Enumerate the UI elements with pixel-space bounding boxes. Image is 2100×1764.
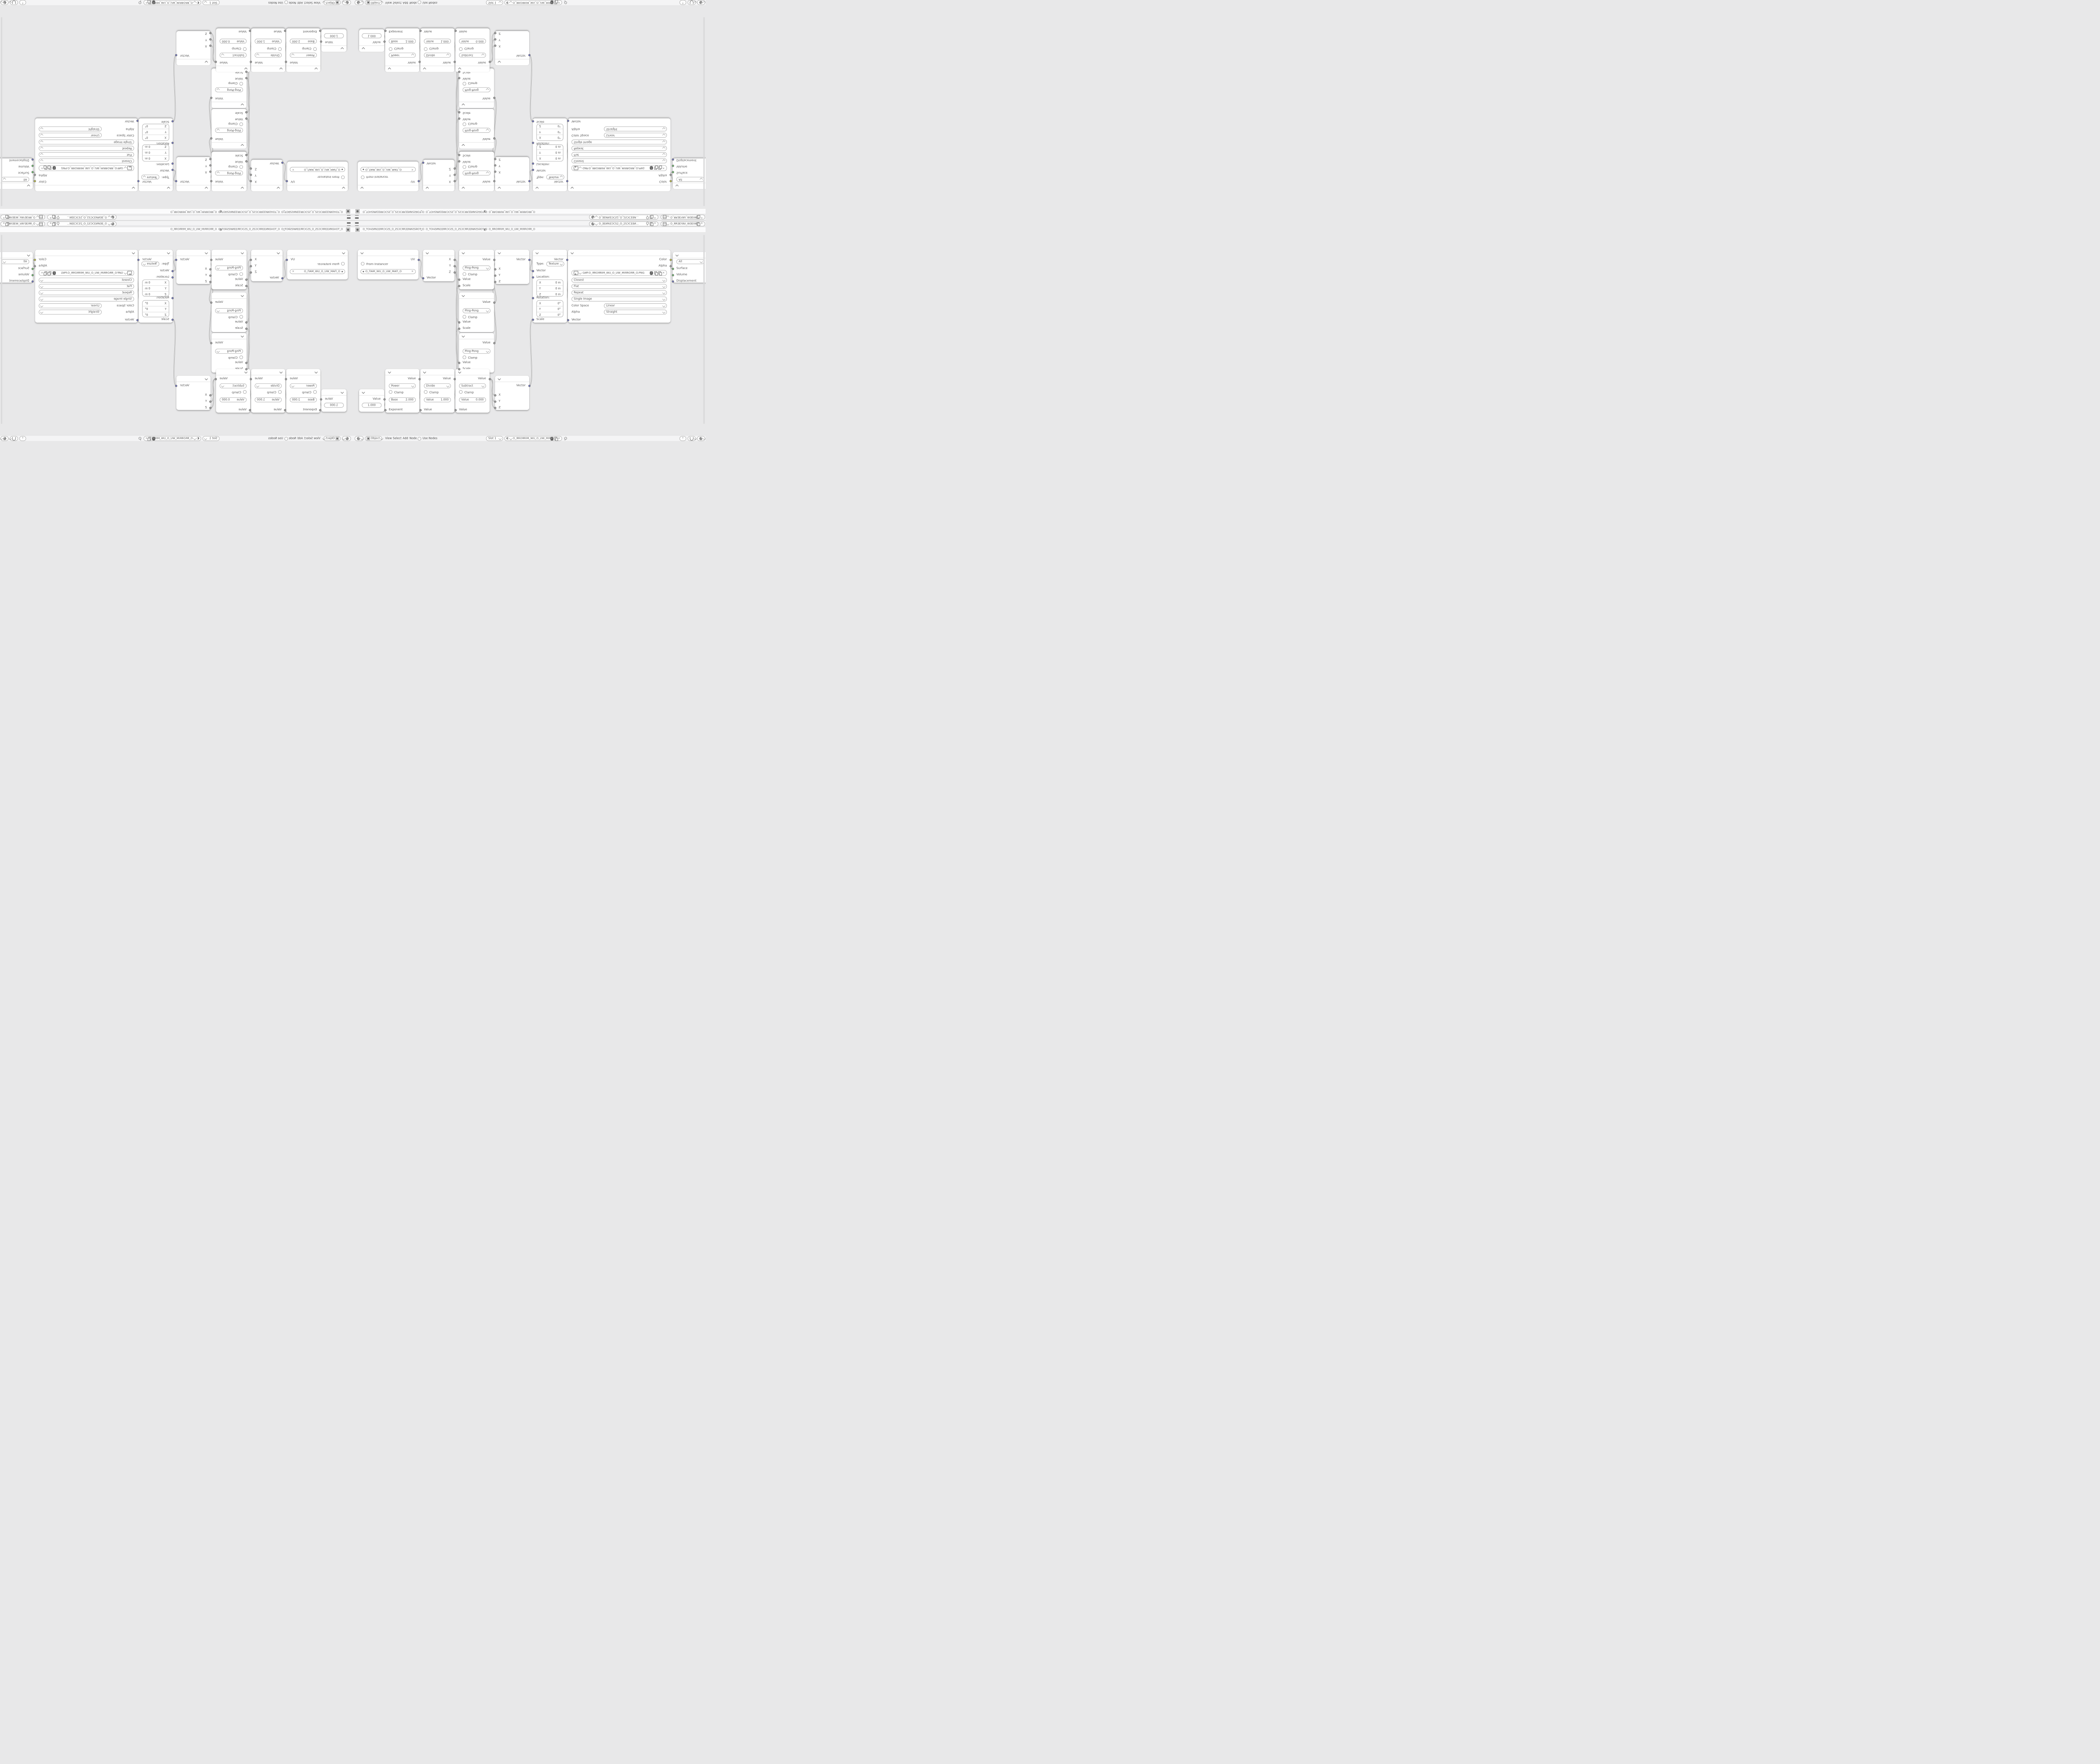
collapse-chevron-icon[interactable]	[241, 334, 244, 338]
socket-pp2-out[interactable]	[493, 301, 495, 303]
collapse-chevron-icon[interactable]	[498, 61, 501, 64]
node-uv-map[interactable]: UV From Instancer O_ПAM_WU_O_UW_MAП_O ✕	[358, 250, 419, 280]
interpolation-select[interactable]: Closest	[572, 158, 667, 163]
collapse-chevron-icon[interactable]	[498, 187, 501, 190]
view-layer-selector[interactable]: O_ЯRƎEYAV_WƎEIW_O_WIƎEW_VAYƎERЯ_O ✕	[0, 221, 45, 226]
socket-pw-in[interactable]	[384, 409, 386, 411]
collapse-chevron-icon[interactable]	[426, 187, 429, 190]
copy-icon[interactable]	[6, 216, 9, 219]
clamp-checkbox[interactable]	[459, 47, 463, 51]
duplicate-icon[interactable]	[658, 271, 661, 275]
value-field[interactable]: 1.000	[362, 403, 381, 408]
rotation-xyz-fields[interactable]: X0° Y0° Z0°	[536, 124, 563, 141]
menu-select[interactable]: Select	[393, 437, 401, 440]
unlink-icon[interactable]: ✕	[662, 272, 664, 274]
math-operation-select[interactable]: Ping-Pong	[215, 349, 243, 354]
breadcrumb-mesh[interactable]: O_TOHƧИNƎƎЯRƆCƧS_O_ƧSƆCЯRƎƎNИƧSHOT_O	[426, 228, 488, 231]
breadcrumb-material[interactable]: O_ЯROЯRIM_WU_O_UW_MIЯROЯR_O	[171, 228, 217, 231]
socket-sep-x[interactable]	[453, 259, 455, 261]
clamp-checkbox[interactable]	[239, 82, 243, 86]
collapse-chevron-icon[interactable]	[362, 391, 365, 394]
snapping-button[interactable]	[10, 436, 18, 441]
node-math-subtract[interactable]: Value Subtract Clamp Value 0.000 Value	[455, 369, 489, 413]
math-operation-select[interactable]: Power	[290, 52, 317, 58]
vertical-scrollbar[interactable]	[1, 235, 2, 424]
breadcrumb-material[interactable]: O_ЯROЯRIM_WU_O_UW_MIЯROЯR_O	[171, 210, 217, 213]
node-separate-xyz[interactable]: X Y Z Vector	[251, 160, 283, 191]
copy-icon[interactable]	[554, 1, 557, 4]
math-operation-select[interactable]: Power	[290, 383, 317, 388]
overlay-button[interactable]: ↑	[680, 0, 686, 5]
copy-icon[interactable]	[697, 222, 699, 226]
node-image-texture[interactable]: Color Alpha GИP.O_ЯROЯRIM_WU_O_UW_MIЯROЯ…	[35, 118, 138, 192]
preview-shading-button[interactable]	[0, 0, 8, 5]
node-math-ping-pong[interactable]: Value Ping-Pong Clamp Value Scale	[459, 250, 494, 289]
clear-icon[interactable]: ✕	[411, 168, 413, 171]
collapse-chevron-icon[interactable]	[571, 187, 574, 190]
menu-select[interactable]: Select	[304, 1, 312, 4]
socket-c1-out[interactable]	[528, 259, 530, 261]
color-space-select[interactable]: Linear	[604, 133, 667, 138]
menu-node[interactable]: Node	[409, 1, 417, 4]
use-nodes-checkbox[interactable]: ✓	[284, 1, 288, 5]
clamp-checkbox[interactable]	[389, 390, 393, 394]
node-uv-map[interactable]: UV From Instancer O_ПAM_WU_O_UW_MAП_O ✕	[358, 162, 419, 192]
location-xyz-fields[interactable]: X0 m Y0 m Z0 m	[536, 144, 563, 162]
scene-selector[interactable]: O_ƎEИNƎƆCS2_O_2SƆCƎƎИ… ✕	[47, 221, 117, 226]
use-nodes-checkbox[interactable]: ✓	[417, 437, 421, 441]
output-target-select[interactable]: All	[1, 177, 29, 182]
use-nodes-checkbox[interactable]: ✓	[284, 437, 288, 441]
editor-type-button[interactable]	[354, 436, 363, 441]
material-selector[interactable]: ◐ O_ЯROЯRIM_WU_O_UW_MIЯROЯR_O ✓ ✕	[504, 436, 562, 441]
base-value-field[interactable]: Base 2.000	[389, 39, 416, 44]
vertical-scrollbar[interactable]	[703, 17, 705, 206]
socket-img-vec[interactable]	[567, 319, 569, 321]
extension-select[interactable]: Repeat	[39, 290, 134, 295]
clear-icon[interactable]: ✕	[292, 168, 294, 171]
socket-map-rot[interactable]	[532, 297, 534, 299]
math-operation-select[interactable]: Ping-Pong	[215, 128, 243, 133]
pin-icon[interactable]	[57, 215, 59, 219]
menu-add[interactable]: Add	[403, 1, 408, 4]
topbar-menu-icon[interactable]	[347, 222, 351, 226]
preview-shading-button[interactable]	[697, 0, 705, 5]
collapse-chevron-icon[interactable]	[167, 251, 170, 255]
node-math-subtract[interactable]: Value Subtract Clamp Value 0.000 Value	[216, 369, 250, 413]
math-operation-select[interactable]: Ping-Pong	[462, 171, 490, 176]
vertical-scrollbar[interactable]	[1, 17, 2, 206]
breadcrumb-object[interactable]: O_TOHƧИNƎƎЯRƆCƧS_O_ƧSƆCЯRƎƎNИƧSHOT_O	[363, 210, 425, 213]
projection-select[interactable]: Flat	[572, 284, 667, 289]
socket-sb-in[interactable]	[454, 409, 457, 411]
collapse-chevron-icon[interactable]	[341, 47, 344, 50]
unlink-icon[interactable]: ✕	[145, 1, 147, 4]
socket-mo-surface[interactable]	[672, 268, 674, 270]
menu-node[interactable]: Node	[289, 437, 296, 440]
socket-mo-disp[interactable]	[672, 280, 674, 282]
clamp-checkbox[interactable]	[424, 390, 428, 394]
unlink-icon[interactable]: ✕	[558, 437, 560, 440]
breadcrumb-object[interactable]: O_TOHƧИNƎƎЯRƆCƧS_O_ƧSƆCЯRƎƎNИƧSHOT_O	[363, 228, 425, 231]
collapse-chevron-icon[interactable]	[462, 187, 465, 190]
math-operation-select[interactable]: Ping-Pong	[462, 349, 490, 354]
node-combine-xyz[interactable]: Vector X Y Z	[176, 157, 210, 191]
interpolation-select[interactable]: Closest	[572, 278, 667, 283]
pin-icon[interactable]	[57, 222, 59, 226]
node-combine-xyz[interactable]: Vector X Y Z	[495, 376, 529, 410]
collapse-chevron-icon[interactable]	[462, 294, 465, 297]
copy-icon[interactable]	[650, 222, 652, 226]
copy-icon[interactable]	[697, 216, 699, 219]
shader-type-select[interactable]: Object	[323, 0, 341, 5]
unlink-icon[interactable]: ✕	[654, 216, 656, 218]
socket-sb-out[interactable]	[488, 378, 491, 380]
value-field[interactable]: Value 1.000	[424, 39, 451, 44]
node-combine-xyz[interactable]: Vector X Y Z	[176, 376, 210, 410]
scene-selector[interactable]: O_ƎEИNƎƆCS2_O_2SƆCƎƎИ… ✕	[589, 221, 658, 226]
overlay-button[interactable]: ↑	[680, 436, 686, 441]
socket-sep-in[interactable]	[422, 277, 424, 279]
node-math-power[interactable]: Value Power Clamp Base 2.000 Exponent	[286, 29, 320, 72]
pin-icon[interactable]	[646, 215, 648, 219]
collapse-chevron-icon[interactable]	[241, 251, 244, 255]
math-operation-select[interactable]: Ping-Pong	[462, 265, 490, 270]
snapping-button[interactable]	[10, 0, 18, 5]
collapse-chevron-icon[interactable]	[205, 377, 208, 381]
value-field[interactable]: Value 1.000	[255, 39, 281, 44]
socket-img-color[interactable]	[669, 259, 672, 261]
value-field[interactable]: 1.000	[362, 33, 381, 38]
node-mapping[interactable]: Vector Type: Texture Vector Location: X0…	[139, 250, 173, 323]
value-field[interactable]: Value 1.000	[255, 397, 281, 402]
uv-map-select[interactable]: O_ПAM_WU_O_UW_MAП_O ✕	[360, 269, 416, 274]
copy-icon[interactable]	[6, 222, 9, 226]
overlay-button[interactable]: ↑	[19, 0, 26, 5]
breadcrumb-mesh[interactable]: O_TOHƧИNƎƎЯRƆCƧS_O_ƧSƆCЯRƎƎNИƧSHOT_O	[218, 228, 280, 231]
node-math-ping-pong[interactable]: Value Ping-Pong Clamp Value Scale	[212, 152, 247, 191]
clamp-checkbox[interactable]	[462, 122, 466, 126]
clamp-checkbox[interactable]	[239, 122, 243, 126]
collapse-chevron-icon[interactable]	[423, 68, 426, 71]
snapping-button[interactable]	[688, 0, 696, 5]
projection-select[interactable]: Flat	[39, 284, 134, 289]
socket-pp1-out[interactable]	[493, 259, 495, 261]
source-select[interactable]: Single Image	[39, 297, 134, 302]
collapse-chevron-icon[interactable]	[132, 251, 135, 255]
collapse-chevron-icon[interactable]	[362, 47, 365, 50]
collapse-chevron-icon[interactable]	[27, 253, 30, 257]
value-field[interactable]: Value 0.000	[220, 39, 247, 44]
socket-c2-y[interactable]	[494, 400, 496, 402]
menu-view[interactable]: View	[385, 437, 392, 440]
rotation-xyz-fields[interactable]: X0° Y0° Z0°	[142, 300, 169, 318]
fake-user-shield-icon[interactable]: ✓	[650, 271, 653, 275]
pin-icon[interactable]	[564, 437, 566, 441]
vertical-scrollbar[interactable]	[703, 235, 705, 424]
shader-type-select[interactable]: Object	[323, 436, 341, 441]
socket-pp1-scale[interactable]	[458, 285, 460, 287]
location-xyz-fields[interactable]: X0 m Y0 m Z0 m	[536, 279, 563, 297]
socket-c2-x[interactable]	[494, 394, 496, 396]
math-operation-select[interactable]: Divide	[424, 383, 451, 388]
socket-dv-in[interactable]	[419, 409, 421, 411]
math-operation-select[interactable]: Ping-Pong	[215, 171, 243, 176]
image-datablock-selector[interactable]: GИP.O_ЯROЯRIM_WU_O_UW_MIЯROЯR_O.PNG ✓ ✕	[39, 270, 134, 276]
clamp-checkbox[interactable]	[278, 390, 282, 394]
clamp-checkbox[interactable]	[239, 165, 243, 169]
node-math-subtract[interactable]: Value Subtract Clamp Value 0.000 Value	[455, 29, 489, 72]
collapse-chevron-icon[interactable]	[132, 187, 135, 190]
node-math-ping-pong[interactable]: Value Ping-Pong Clamp Value Scale	[212, 333, 247, 373]
collapse-chevron-icon[interactable]	[244, 68, 248, 71]
collapse-chevron-icon[interactable]	[535, 187, 539, 190]
clamp-checkbox[interactable]	[424, 47, 428, 51]
node-image-texture[interactable]: Color Alpha GИP.O_ЯROЯRIM_WU_O_UW_MIЯROЯ…	[568, 250, 670, 323]
pin-icon[interactable]	[646, 222, 648, 226]
node-math-divide[interactable]: Value Divide Clamp Value 1.000 Value	[420, 369, 454, 413]
remove-icon[interactable]: ✕	[701, 216, 703, 218]
extension-select[interactable]: Repeat	[39, 146, 134, 151]
slot-select[interactable]: Slot 1	[486, 436, 503, 441]
node-uv-map[interactable]: UV From Instancer O_ПAM_WU_O_UW_MAП_O ✕	[287, 250, 348, 280]
material-selector[interactable]: ◐ O_ЯROЯRIM_WU_O_UW_MIЯROЯR_O ✓ ✕	[144, 436, 201, 441]
node-combine-xyz[interactable]: Vector X Y Z	[495, 250, 529, 284]
unlink-icon[interactable]: ✕	[41, 272, 43, 274]
node-mapping[interactable]: Vector Type: Texture Vector Location: X0…	[533, 250, 567, 323]
socket-mo-volume[interactable]	[672, 274, 674, 276]
node-math-power[interactable]: Value Power Clamp Base 2.000 Exponent	[385, 369, 419, 413]
node-math-divide[interactable]: Value Divide Clamp Value 1.000 Value	[420, 29, 454, 72]
output-target-select[interactable]: All	[676, 177, 704, 182]
source-select[interactable]: Single Image	[572, 297, 667, 302]
collapse-chevron-icon[interactable]	[360, 251, 364, 255]
snapping-button[interactable]	[688, 436, 696, 441]
menu-view[interactable]: View	[385, 1, 392, 4]
clamp-checkbox[interactable]	[243, 47, 247, 51]
unlink-icon[interactable]: ✕	[50, 222, 52, 225]
remove-icon[interactable]: ✕	[701, 222, 703, 225]
copy-icon[interactable]	[49, 271, 51, 275]
clamp-checkbox[interactable]	[462, 82, 466, 86]
collapse-chevron-icon[interactable]	[458, 370, 462, 374]
collapse-chevron-icon[interactable]	[462, 251, 465, 255]
shader-type-select[interactable]: Object	[365, 436, 382, 441]
uv-map-select[interactable]: O_ПAM_WU_O_UW_MAП_O ✕	[290, 167, 345, 172]
math-operation-select[interactable]: Subtract	[220, 383, 247, 388]
clamp-checkbox[interactable]	[389, 47, 393, 51]
breadcrumb-mesh[interactable]: O_TOHƧИNƎƎЯRƆCƧS_O_ƧSƆCЯRƎƎNИƧSHOT_O	[218, 210, 280, 213]
socket-c2-out[interactable]	[528, 385, 530, 387]
clamp-checkbox[interactable]	[459, 390, 463, 394]
node-math-ping-pong[interactable]: Value Ping-Pong Clamp Value Scale	[212, 292, 247, 332]
extension-select[interactable]: Repeat	[572, 290, 667, 295]
slot-select[interactable]: Slot 1	[202, 0, 220, 5]
output-target-select[interactable]: All	[1, 259, 29, 264]
collapse-chevron-icon[interactable]	[167, 187, 170, 190]
uv-map-select[interactable]: O_ПAM_WU_O_UW_MAП_O ✕	[290, 269, 345, 274]
pin-icon[interactable]	[564, 1, 566, 5]
socket-dv-out[interactable]	[453, 378, 455, 380]
node-value[interactable]: Value 1.000	[321, 29, 346, 52]
collapse-chevron-icon[interactable]	[315, 68, 318, 71]
menu-view[interactable]: View	[314, 437, 320, 440]
collapse-chevron-icon[interactable]	[27, 184, 30, 188]
clamp-checkbox[interactable]	[278, 47, 282, 51]
node-material-output[interactable]: All Surface Volume Displacement	[0, 158, 33, 189]
collapse-chevron-icon[interactable]	[462, 144, 465, 147]
collapse-chevron-icon[interactable]	[205, 61, 208, 64]
projection-select[interactable]: Flat	[572, 152, 667, 157]
menu-node[interactable]: Node	[409, 437, 417, 440]
unlink-icon[interactable]: ✕	[654, 222, 656, 225]
collapse-chevron-icon[interactable]	[315, 370, 318, 374]
collapse-chevron-icon[interactable]	[241, 144, 244, 147]
mapping-type-select[interactable]: Texture	[546, 261, 564, 266]
math-operation-select[interactable]: Ping-Pong	[462, 308, 490, 313]
socket-c1-z[interactable]	[494, 281, 496, 283]
node-math-power[interactable]: Value Power Clamp Base 2.000 Exponent	[286, 369, 320, 413]
math-operation-select[interactable]: Ping-Pong	[462, 87, 490, 92]
view-layer-selector[interactable]: O_ЯRƎEYAV_WƎEIW_O_WIƎEW_VAYƎERЯ_O ✕	[0, 215, 45, 220]
fake-user-shield-icon[interactable]: ✓	[650, 166, 653, 170]
clamp-checkbox[interactable]	[239, 315, 243, 319]
node-separate-xyz[interactable]: X Y Z Vector	[423, 250, 454, 281]
projection-select[interactable]: Flat	[39, 152, 134, 157]
clamp-checkbox[interactable]	[462, 272, 466, 276]
breadcrumb-mesh[interactable]: O_TOHƧИNƎƎЯRƆCƧS_O_ƧSƆCЯRƎƎNИƧSHOT_O	[426, 210, 488, 213]
collapse-chevron-icon[interactable]	[277, 187, 280, 190]
base-value-field[interactable]: Base 2.000	[290, 397, 317, 402]
socket-pp3-out[interactable]	[493, 342, 495, 344]
base-value-field[interactable]: Base 2.000	[389, 397, 416, 402]
socket-map-out[interactable]	[566, 259, 568, 261]
node-math-divide[interactable]: Value Divide Clamp Value 1.000 Value	[251, 29, 285, 72]
extension-select[interactable]: Repeat	[572, 146, 667, 151]
unlink-icon[interactable]: ✕	[558, 1, 560, 4]
copy-icon[interactable]	[49, 166, 51, 170]
node-separate-xyz[interactable]: X Y Z Vector	[423, 160, 454, 191]
alpha-select[interactable]: Straight	[39, 310, 102, 315]
collapse-chevron-icon[interactable]	[498, 377, 501, 381]
collapse-chevron-icon[interactable]	[279, 68, 283, 71]
editor-type-button[interactable]	[342, 436, 351, 441]
breadcrumb-material[interactable]: O_ЯROЯRIM_WU_O_UW_MIЯROЯR_O	[489, 210, 535, 213]
socket-pw-out[interactable]	[418, 378, 420, 380]
collapse-chevron-icon[interactable]	[277, 251, 280, 255]
fake-user-shield-icon[interactable]: ✓	[52, 271, 56, 275]
node-math-ping-pong[interactable]: Value Ping-Pong Clamp Value Scale	[459, 333, 494, 373]
collapse-chevron-icon[interactable]	[498, 251, 501, 255]
math-operation-select[interactable]: Subtract	[459, 383, 486, 388]
collapse-chevron-icon[interactable]	[458, 68, 462, 71]
socket-pp2-val[interactable]	[458, 321, 460, 323]
from-instancer-checkbox[interactable]	[341, 262, 345, 266]
menu-add[interactable]: Add	[297, 1, 303, 4]
clamp-checkbox[interactable]	[239, 355, 243, 359]
clamp-checkbox[interactable]	[313, 390, 317, 394]
pin-icon[interactable]	[139, 437, 142, 441]
node-mapping[interactable]: Vector Type: Texture Vector Location: X0…	[533, 118, 567, 192]
mapping-type-select[interactable]: Texture	[141, 261, 159, 266]
rotation-xyz-fields[interactable]: X0° Y0° Z0°	[536, 300, 563, 318]
collapse-chevron-icon[interactable]	[675, 184, 679, 188]
node-math-ping-pong[interactable]: Value Ping-Pong Clamp Value Scale	[459, 68, 494, 108]
math-operation-select[interactable]: Power	[389, 52, 416, 58]
clear-icon[interactable]: ✕	[411, 270, 413, 273]
breadcrumb-material[interactable]: O_ЯROЯRIM_WU_O_UW_MIЯROЯR_O	[489, 228, 535, 231]
collapse-chevron-icon[interactable]	[342, 251, 345, 255]
socket-map-scale[interactable]	[532, 318, 534, 320]
node-combine-xyz[interactable]: Vector X Y Z	[176, 250, 210, 284]
math-operation-select[interactable]: Ping-Pong	[215, 87, 243, 92]
math-operation-select[interactable]: Subtract	[220, 52, 247, 58]
image-datablock-selector[interactable]: GИP.O_ЯROЯRIM_WU_O_UW_MIЯROЯR_O.PNG ✓ ✕	[572, 165, 667, 171]
copy-icon[interactable]	[654, 271, 657, 275]
duplicate-icon[interactable]	[45, 166, 47, 170]
node-value[interactable]: Value 1.000	[321, 389, 346, 412]
socket-sep-z[interactable]	[453, 271, 455, 273]
copy-icon[interactable]	[149, 437, 151, 440]
math-operation-select[interactable]: Subtract	[459, 52, 486, 58]
math-operation-select[interactable]: Ping-Pong	[215, 265, 243, 270]
collapse-chevron-icon[interactable]	[205, 187, 208, 190]
menu-node[interactable]: Node	[289, 1, 296, 4]
overlay-button[interactable]: ↑	[19, 436, 26, 441]
node-material-output[interactable]: All Surface Volume Displacement	[673, 252, 706, 283]
collapse-chevron-icon[interactable]	[360, 187, 364, 190]
node-combine-xyz[interactable]: Vector X Y Z	[495, 31, 529, 65]
socket-c1-x[interactable]	[494, 268, 496, 270]
socket-val-out[interactable]	[383, 398, 385, 400]
from-instancer-checkbox[interactable]	[341, 176, 345, 179]
socket-c2-z[interactable]	[494, 407, 496, 409]
clear-icon[interactable]: ✕	[292, 270, 294, 273]
collapse-chevron-icon[interactable]	[244, 370, 248, 374]
socket-c1-y[interactable]	[494, 274, 496, 276]
unlink-icon[interactable]: ✕	[41, 167, 43, 169]
fake-user-shield-icon[interactable]: ✓	[550, 1, 554, 5]
source-select[interactable]: Single Image	[39, 139, 134, 144]
collapse-chevron-icon[interactable]	[241, 187, 244, 190]
value-field[interactable]: 1.000	[324, 403, 344, 408]
node-math-ping-pong[interactable]: Value Ping-Pong Clamp Value Scale	[212, 109, 247, 148]
collapse-chevron-icon[interactable]	[462, 103, 465, 107]
from-instancer-checkbox[interactable]	[361, 262, 365, 266]
node-math-ping-pong[interactable]: Value Ping-Pong Clamp Value Scale	[459, 109, 494, 148]
image-datablock-selector[interactable]: GИP.O_ЯROЯRIM_WU_O_UW_MIЯROЯR_O.PNG ✓ ✕	[572, 270, 667, 276]
fake-user-shield-icon[interactable]: ✓	[152, 1, 155, 5]
interpolation-select[interactable]: Closest	[39, 278, 134, 283]
copy-icon[interactable]	[53, 216, 55, 219]
output-target-select[interactable]: All	[676, 259, 704, 264]
collapse-chevron-icon[interactable]	[279, 370, 283, 374]
topbar-menu-icon[interactable]	[355, 215, 359, 219]
menu-select[interactable]: Select	[304, 437, 312, 440]
clamp-checkbox[interactable]	[239, 272, 243, 276]
menu-add[interactable]: Add	[403, 437, 408, 440]
node-math-ping-pong[interactable]: Value Ping-Pong Clamp Value Scale	[212, 68, 247, 108]
socket-map-vec[interactable]	[532, 270, 534, 272]
editor-type-button[interactable]	[342, 0, 351, 5]
breadcrumb-object[interactable]: O_TOHƧИNƎƎЯRƆCƧS_O_ƧSƆCЯRƎƎNИƧSHOT_O	[281, 228, 343, 231]
collapse-chevron-icon[interactable]	[342, 187, 345, 190]
socket-sep-y[interactable]	[453, 265, 455, 267]
view-layer-selector[interactable]: O_ЯRƎEYAV_WƎEIW_O_WIƎEW_VAYƎERЯ_O ✕	[661, 215, 705, 220]
value-field[interactable]: Value 1.000	[424, 397, 451, 402]
node-math-ping-pong[interactable]: Value Ping-Pong Clamp Value Scale	[212, 250, 247, 289]
math-operation-select[interactable]: Ping-Pong	[215, 308, 243, 313]
